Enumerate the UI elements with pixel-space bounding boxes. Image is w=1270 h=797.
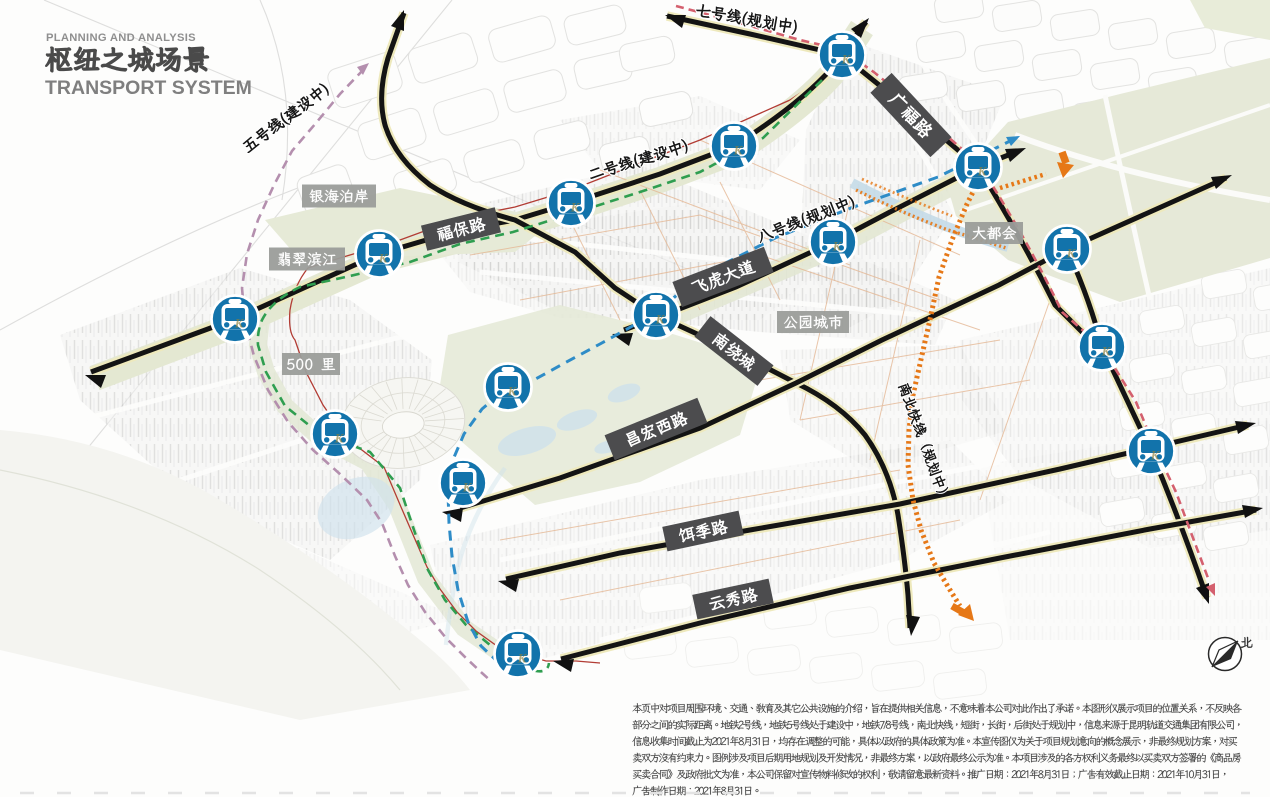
svg-text:TRANSPORT SYSTEM: TRANSPORT SYSTEM	[45, 77, 252, 99]
svg-text:PLANNING AND ANALYSIS: PLANNING AND ANALYSIS	[46, 32, 196, 44]
